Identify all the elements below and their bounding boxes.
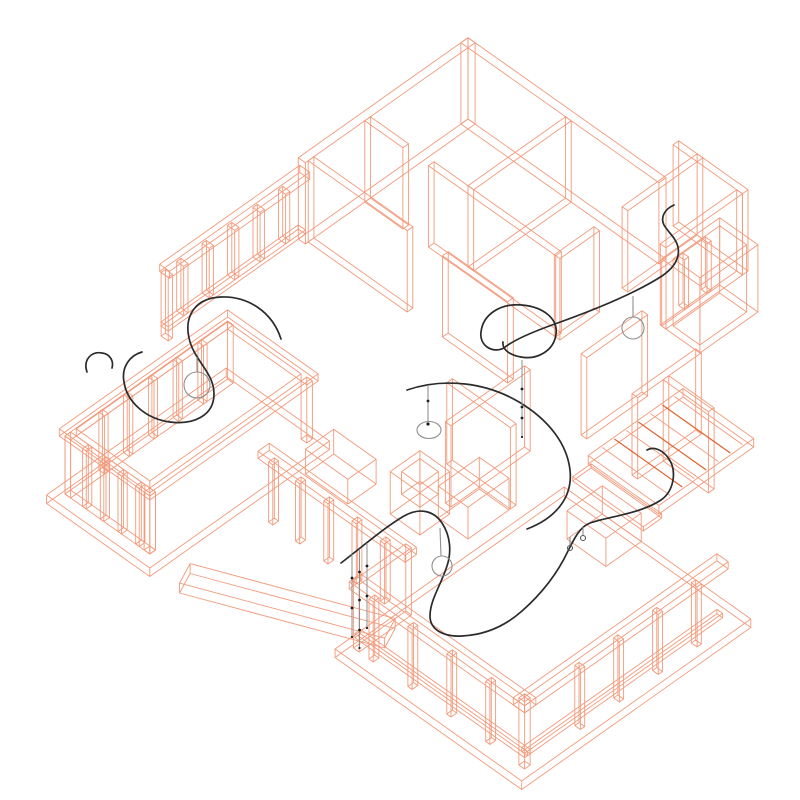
cable-bead-1	[427, 400, 430, 403]
drop-line-bead-2-2	[351, 607, 354, 610]
drop-line-bead-3-1	[358, 571, 361, 574]
porch-sw-sill	[355, 629, 530, 757]
porch-se-mullion-1	[691, 580, 701, 647]
drop-line-bead-1-1	[521, 388, 524, 391]
drop-line-end-dot-3	[358, 647, 360, 649]
balcony-mullion-2	[679, 253, 689, 310]
drop-line-bead-1-3	[521, 417, 524, 420]
porch-se-mullion-2	[653, 607, 663, 674]
balcony-outer	[662, 218, 758, 353]
drop-line-end-dot-4	[366, 627, 368, 629]
drop-line-bead-2-1	[351, 577, 354, 580]
pendant-lamp-circle-1	[184, 372, 210, 398]
pendant-lamp-circle-2	[622, 317, 644, 339]
axonometric-drawing-canvas	[0, 0, 800, 800]
deck	[588, 389, 754, 515]
core-wall-a	[445, 366, 530, 507]
porch-sw-mullion-4	[486, 677, 496, 744]
pendant-lamp-circle-5	[581, 536, 586, 541]
corridor-wall-b	[443, 252, 514, 383]
cable-bead-2	[426, 422, 429, 425]
balcony-mullion-1	[701, 237, 711, 294]
terrace-post-b	[144, 488, 155, 554]
core-wall-b	[447, 379, 516, 509]
axonometric-drawing	[0, 0, 800, 800]
drop-line-bead-4-1	[366, 565, 369, 568]
cable-center-arc	[407, 383, 570, 529]
living-mullion-3	[324, 497, 334, 564]
terrace-nw-wall	[65, 321, 233, 498]
drop-line-bead-3-2	[358, 599, 361, 602]
drop-line-bead-3-3	[358, 629, 361, 632]
cable-left-hook	[86, 353, 113, 372]
nw-wall	[298, 38, 475, 244]
porch-se-sill	[522, 609, 723, 755]
lighting-cable-curves	[86, 205, 678, 636]
low-box	[567, 486, 641, 567]
cable-right-long-loop	[481, 205, 679, 358]
porch-se-mullion-3	[614, 635, 624, 702]
pendant-lights	[184, 296, 644, 649]
living-window-head	[258, 443, 416, 562]
pendant-stem-4	[440, 528, 441, 556]
drop-line-bead-1-2	[521, 406, 524, 409]
drop-line-end-dot-1	[521, 436, 523, 438]
porch-sw-mullion-1	[369, 595, 379, 662]
living-mullion-2	[296, 477, 306, 544]
porch-sw-mullion-3	[447, 650, 457, 717]
porch-se-mullion-4	[575, 662, 585, 729]
drop-line-bead-4-2	[366, 595, 369, 598]
corridor-wall-a	[308, 157, 413, 312]
cable-left-s	[123, 297, 281, 423]
partition-b	[365, 117, 409, 229]
drop-line-end-dot-2	[351, 636, 353, 638]
cabinet	[438, 457, 509, 539]
front-plinth	[335, 487, 751, 790]
ne-wall	[461, 38, 666, 264]
interior-wall-b	[663, 376, 714, 493]
porch-sw-mullion-2	[408, 622, 418, 689]
terrace-head-inner	[76, 322, 301, 488]
